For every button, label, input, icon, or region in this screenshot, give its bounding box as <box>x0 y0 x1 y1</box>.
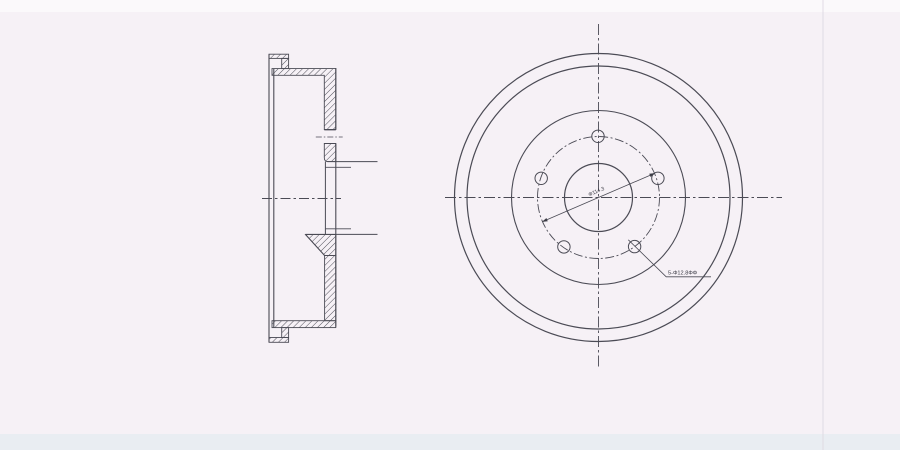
svg-text:5-Φ12.8ΦΦ: 5-Φ12.8ΦΦ <box>668 271 698 277</box>
